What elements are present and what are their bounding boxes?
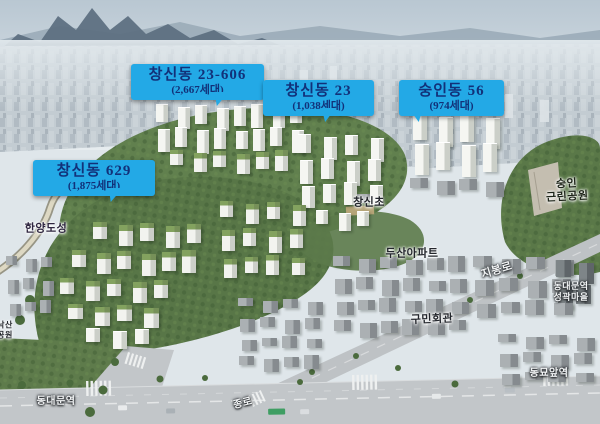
building — [316, 210, 328, 224]
building — [97, 253, 111, 274]
building — [40, 300, 51, 313]
label-dongmyo-station: 동묘앞역 — [530, 368, 569, 380]
label-dongdaemun-station: 동대문역 — [37, 396, 76, 408]
building — [135, 329, 149, 344]
building — [308, 302, 323, 315]
callout-subtitle: (1,875세대) — [39, 180, 149, 192]
building — [25, 302, 36, 311]
building — [293, 205, 306, 226]
building — [403, 278, 420, 291]
building — [486, 182, 504, 197]
label-changsin-elementary: 창신초 — [353, 196, 385, 209]
building — [356, 277, 373, 289]
building — [448, 256, 465, 272]
building — [526, 337, 544, 349]
building — [283, 299, 298, 308]
building — [243, 228, 256, 246]
building — [525, 300, 544, 315]
building — [156, 104, 168, 122]
building — [410, 178, 428, 188]
callout-changsin-23-606: 창신동 23-606 (2,667세대) — [131, 64, 264, 100]
building — [523, 352, 541, 362]
building — [437, 181, 455, 195]
building — [339, 213, 351, 231]
label-doosan-apartment: 두산아파트 — [385, 247, 438, 260]
building — [240, 319, 255, 332]
building — [502, 374, 520, 385]
label-seonggwak-village: 동대문역 성곽마을 — [553, 281, 588, 303]
building — [133, 282, 147, 303]
building — [68, 304, 83, 319]
building — [234, 106, 246, 126]
building — [72, 250, 86, 267]
building — [263, 301, 278, 313]
building — [459, 179, 477, 190]
building — [195, 105, 207, 124]
building — [333, 256, 350, 266]
building — [142, 254, 156, 276]
building — [170, 150, 183, 165]
building — [107, 279, 121, 296]
building — [305, 318, 320, 329]
building — [246, 204, 259, 224]
building — [86, 328, 100, 342]
building — [499, 278, 518, 291]
building — [452, 302, 469, 314]
building — [267, 202, 280, 219]
building — [549, 335, 567, 344]
building — [462, 145, 476, 177]
callout-title: 숭인동 56 — [405, 83, 498, 100]
building — [554, 303, 573, 315]
building — [23, 278, 34, 289]
building — [197, 130, 209, 154]
building — [214, 128, 226, 149]
building — [154, 280, 168, 298]
building — [415, 144, 429, 175]
building — [158, 129, 170, 152]
building — [345, 135, 358, 155]
building — [405, 301, 422, 312]
building — [335, 279, 352, 294]
callout-title: 창신동 629 — [39, 163, 149, 180]
building — [298, 134, 311, 153]
building — [117, 305, 132, 321]
building — [26, 259, 37, 272]
building — [175, 127, 187, 147]
building — [574, 353, 592, 364]
building — [382, 280, 399, 296]
building — [256, 152, 269, 169]
building — [239, 356, 254, 365]
building — [556, 260, 571, 277]
building — [324, 137, 337, 160]
building — [359, 259, 376, 273]
label-hanyang-doseong: 한양도성 — [25, 222, 67, 235]
building — [426, 299, 443, 314]
building — [477, 304, 496, 318]
building — [162, 252, 176, 271]
building — [307, 339, 322, 348]
building — [357, 211, 369, 226]
building — [475, 280, 494, 296]
building — [498, 334, 516, 342]
building — [10, 304, 21, 316]
building — [166, 226, 180, 248]
building — [238, 298, 253, 306]
building — [576, 373, 594, 382]
label-naksan-park: 낙산 공원 — [0, 320, 13, 339]
building — [360, 323, 377, 338]
building — [368, 159, 381, 181]
building — [406, 260, 423, 275]
building — [270, 127, 282, 146]
building — [140, 223, 154, 241]
building — [182, 250, 196, 273]
callout-title: 창신동 23 — [269, 83, 368, 100]
callout-subtitle: (1,038세대) — [269, 100, 368, 112]
building — [337, 302, 354, 315]
building — [300, 160, 313, 184]
building — [86, 281, 100, 301]
building — [526, 257, 545, 269]
building — [334, 320, 351, 331]
building — [285, 320, 300, 334]
building — [379, 298, 396, 312]
building — [93, 222, 107, 239]
building — [60, 278, 74, 294]
building — [551, 355, 569, 369]
building — [237, 154, 250, 174]
building — [236, 131, 248, 149]
building — [224, 259, 237, 278]
building — [41, 257, 52, 267]
building — [429, 281, 446, 291]
building — [6, 256, 17, 265]
building — [245, 257, 258, 273]
building — [381, 321, 398, 333]
building — [292, 258, 305, 275]
building — [194, 153, 207, 172]
label-gumin-hall: 구민회관 — [411, 313, 454, 328]
building — [528, 281, 547, 298]
building — [8, 280, 19, 294]
building — [117, 251, 131, 269]
building — [266, 255, 279, 275]
building — [483, 143, 497, 172]
building — [304, 355, 319, 369]
building — [290, 229, 303, 248]
building — [213, 151, 226, 167]
building — [264, 359, 279, 372]
building — [436, 142, 450, 170]
building — [501, 302, 520, 313]
building — [178, 107, 190, 129]
building — [253, 129, 265, 151]
building — [222, 230, 235, 251]
building — [43, 281, 54, 296]
building — [321, 158, 334, 179]
building — [119, 225, 133, 246]
building — [187, 224, 201, 243]
building — [220, 201, 233, 217]
building — [95, 307, 110, 326]
building — [323, 184, 336, 203]
building — [577, 338, 595, 351]
callout-subtitle: (2,667세대) — [137, 84, 258, 96]
building — [282, 336, 297, 348]
callout-changsin-629: 창신동 629 (1,875세대) — [33, 160, 155, 196]
building — [242, 340, 257, 351]
building — [460, 115, 474, 142]
building — [500, 354, 518, 367]
aerial-rendering-stage: 창신동 23-606 (2,667세대) 창신동 23 (1,038세대) 숭인… — [0, 0, 600, 424]
callout-changsin-23: 창신동 23 (1,038세대) — [263, 80, 374, 116]
callout-sungin-56: 숭인동 56 (974세대) — [399, 80, 504, 116]
building — [284, 357, 299, 367]
building — [113, 331, 127, 349]
building — [251, 104, 263, 128]
building — [358, 300, 375, 310]
callout-title: 창신동 23-606 — [137, 67, 258, 84]
building — [144, 308, 159, 328]
building — [269, 231, 282, 253]
building — [262, 338, 277, 346]
label-sungin-park: 숭인 근린공원 — [545, 177, 589, 206]
building — [275, 150, 288, 171]
building — [450, 279, 467, 293]
building — [260, 317, 275, 327]
